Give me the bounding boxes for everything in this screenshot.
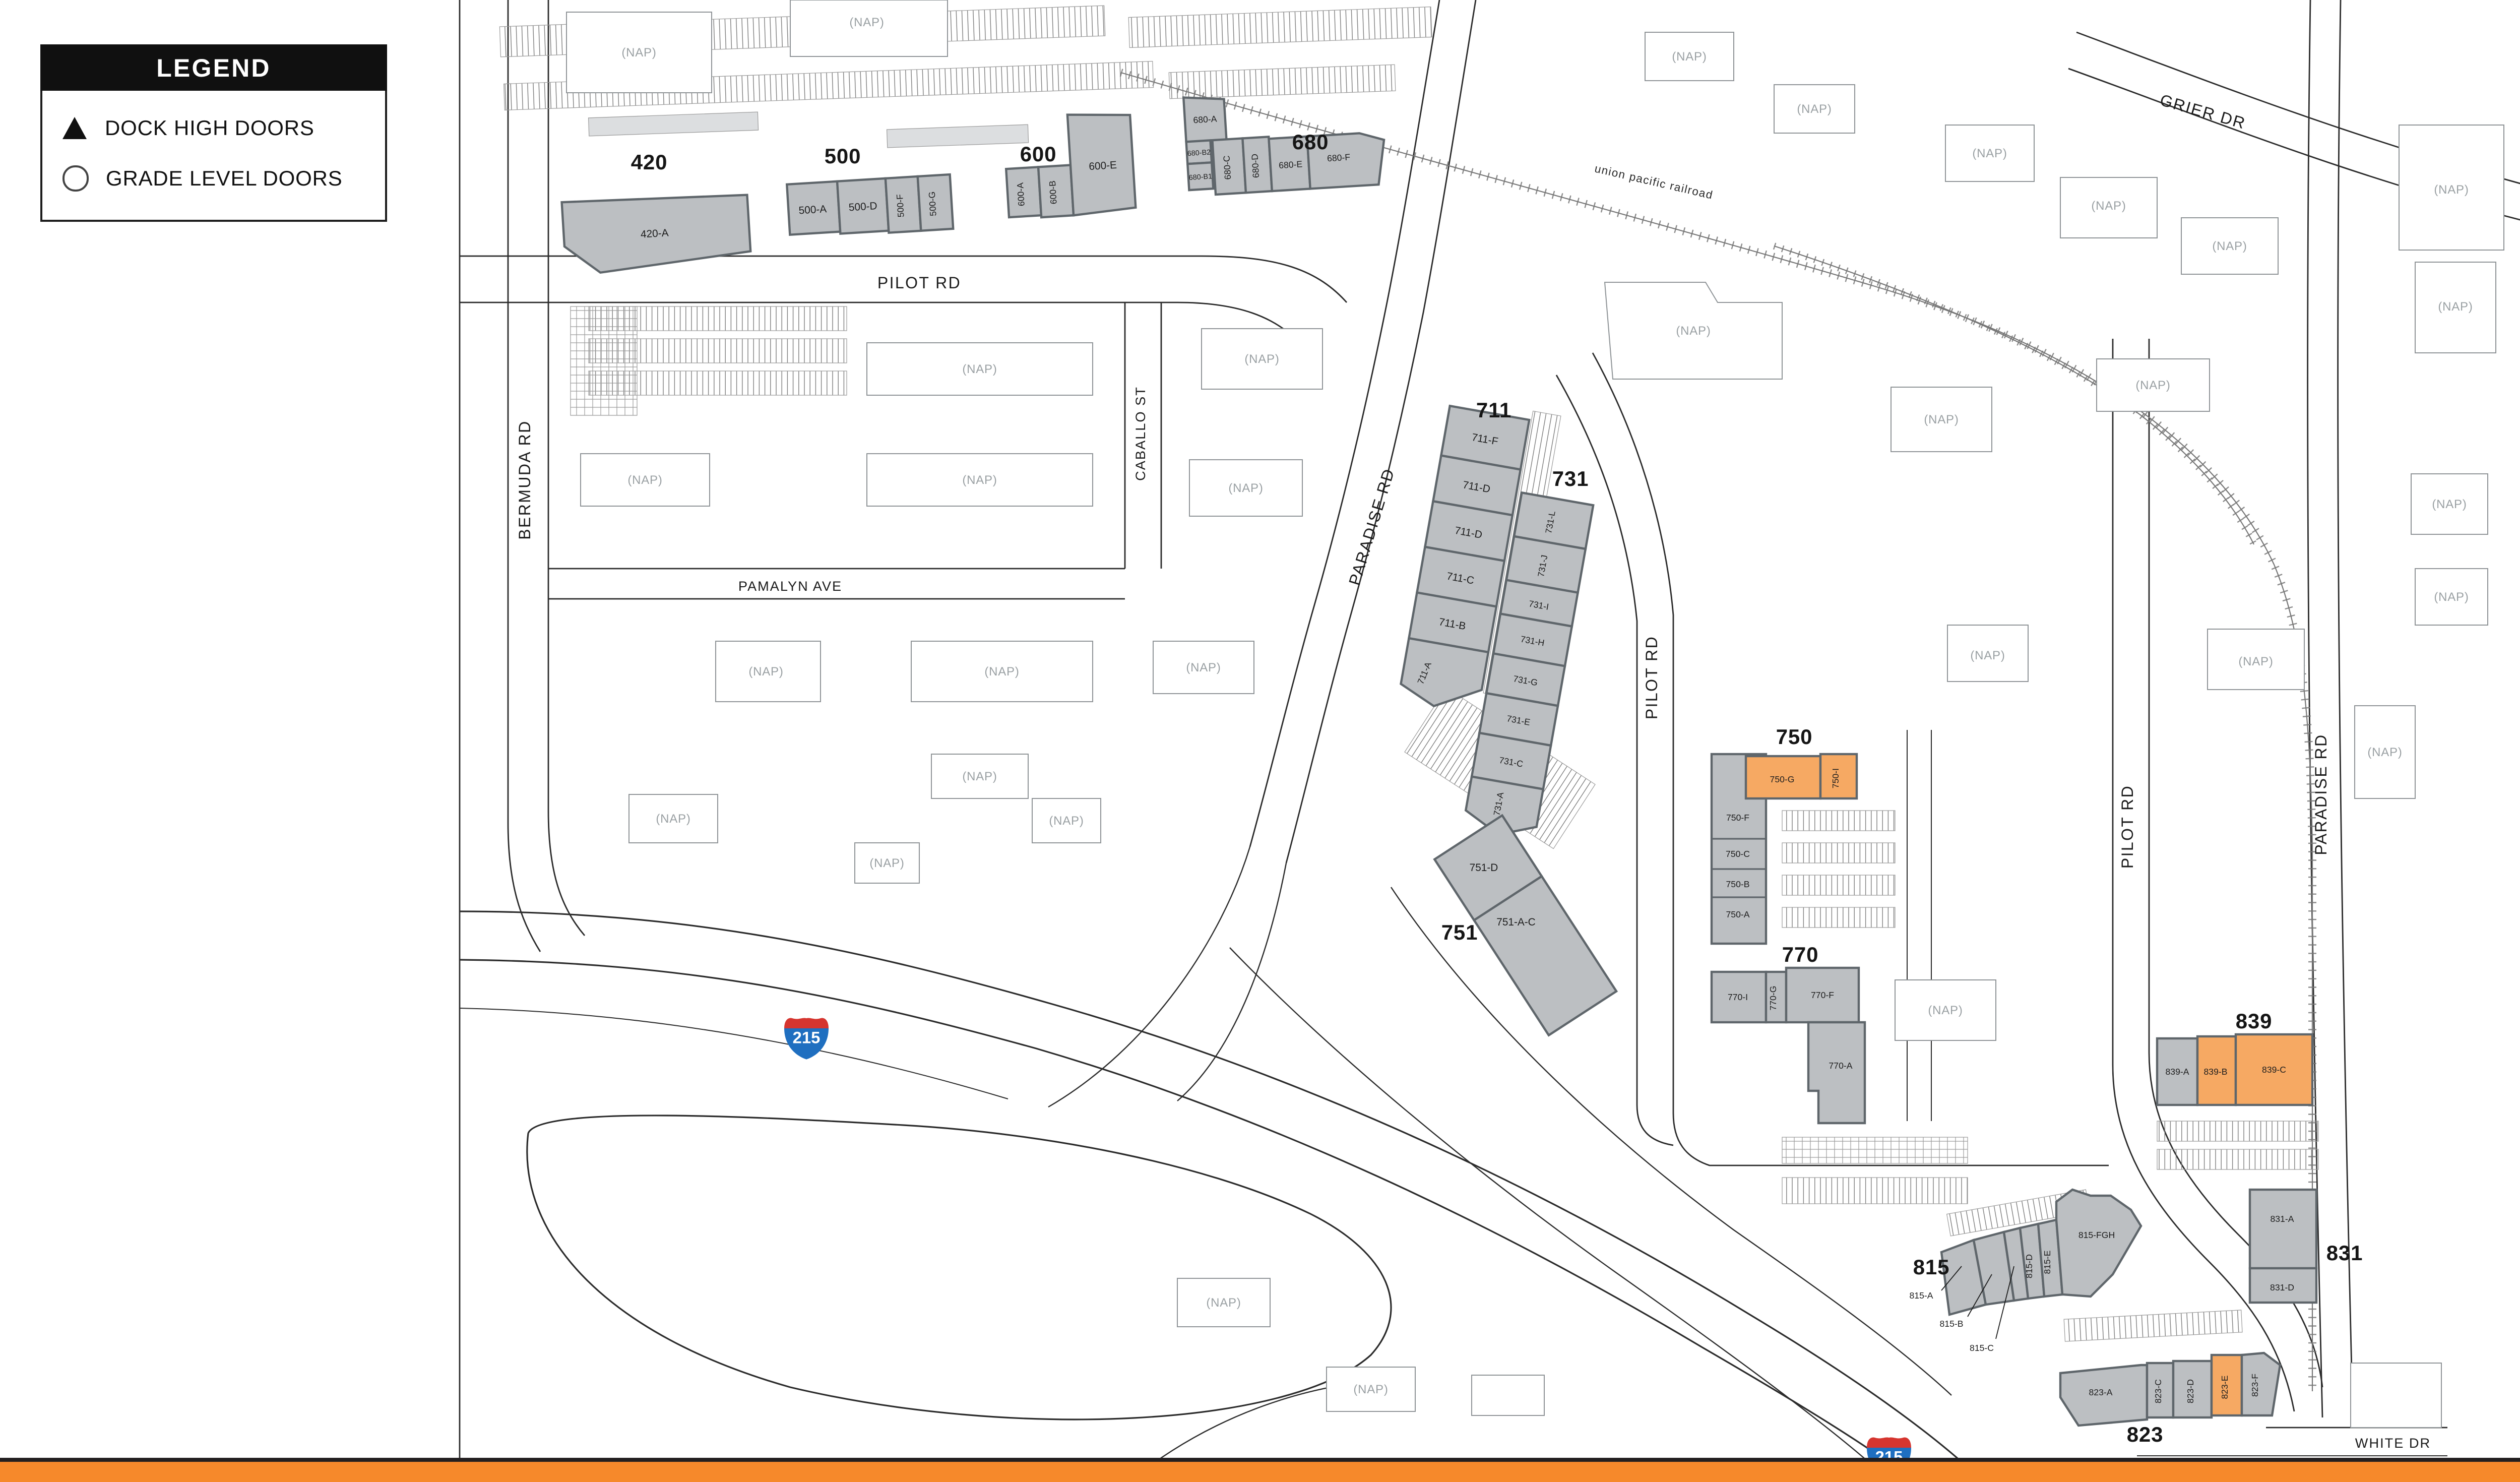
building-815-fgh <box>2056 1190 2141 1296</box>
triangle-icon <box>62 117 87 139</box>
nap-label: (NAP) <box>849 16 884 29</box>
legend-title: LEGEND <box>40 44 387 91</box>
unit-label-500-d: 500-D <box>848 200 877 213</box>
unit-label-500-f: 500-F <box>895 194 906 217</box>
legend-item-label: GRADE LEVEL DOORS <box>106 166 343 191</box>
nap-label: (NAP) <box>1924 413 1959 426</box>
building-823-f <box>2242 1353 2280 1415</box>
unit-label-823-d: 823-D <box>2185 1379 2195 1403</box>
building-number-711: 711 <box>1476 398 1511 422</box>
building-number-750: 750 <box>1776 725 1812 749</box>
unit-label-751-ac: 751-A-C <box>1496 916 1535 928</box>
unit-label-680-f: 680-F <box>1327 152 1351 164</box>
cluster-823: 823-A 823-C 823-D 823-E 823-F <box>2060 1353 2280 1426</box>
interstate-215-shield: 215 <box>784 1018 829 1059</box>
nap-label: (NAP) <box>2238 655 2273 668</box>
unit-label-831-d: 831-D <box>2270 1282 2294 1292</box>
unit-label-680-b2: 680-B2 <box>1187 148 1211 158</box>
nap-label: (NAP) <box>2212 239 2247 253</box>
unit-label-500-a: 500-A <box>798 203 827 216</box>
street-label-paradise-rd-right: PARADISE RD <box>2312 734 2330 855</box>
nap-label: (NAP) <box>2432 498 2467 511</box>
nap-label: (NAP) <box>2367 746 2402 759</box>
unit-label-750-a: 750-A <box>1726 909 1750 919</box>
unit-label-770-i: 770-I <box>1728 992 1748 1002</box>
unit-label-750-i: 750-I <box>1831 768 1841 788</box>
unit-label-815-c: 815-C <box>1970 1343 1994 1353</box>
cluster-770: 770-I 770-G 770-F 770-A <box>1712 968 1865 1123</box>
nap-label: (NAP) <box>1228 481 1263 495</box>
building-number-823: 823 <box>2127 1423 2163 1446</box>
unit-label-815-d: 815-D <box>2024 1254 2034 1278</box>
unit-label-600-e: 600-E <box>1089 159 1117 172</box>
unit-label-600-a: 600-A <box>1015 182 1027 206</box>
street-label-grier-dr: GRIER DR <box>2158 91 2248 133</box>
street-label-union-pacific-railroad: union pacific railroad <box>1594 162 1715 201</box>
nap-label: (NAP) <box>748 665 783 678</box>
street-label-pilot-rd-top: PILOT RD <box>877 274 961 292</box>
street-label-pilot-rd-right: PILOT RD <box>2118 785 2136 869</box>
unit-label-500-g: 500-G <box>927 191 938 216</box>
footer-accent-bar <box>0 1462 2520 1482</box>
nap-label: (NAP) <box>656 812 690 826</box>
street-label-white-dr: WHITE DR <box>2355 1435 2431 1451</box>
unit-label-815-a: 815-A <box>1910 1290 1933 1301</box>
unit-label-750-b: 750-B <box>1726 879 1750 889</box>
nap-label: (NAP) <box>1049 814 1084 828</box>
building-number-770: 770 <box>1782 943 1818 966</box>
nap-label: (NAP) <box>962 770 997 783</box>
nap-label: (NAP) <box>1970 649 2005 662</box>
nap-label: (NAP) <box>2434 590 2469 604</box>
shield-215-label: 215 <box>793 1028 821 1047</box>
unit-label-839-a: 839-A <box>2166 1067 2189 1077</box>
unit-label-831-a: 831-A <box>2271 1214 2294 1224</box>
street-label-caballo-st: CABALLO ST <box>1132 386 1148 481</box>
nap-label: (NAP) <box>2135 379 2170 392</box>
unit-label-823-a: 823-A <box>2089 1387 2113 1397</box>
nap-label: (NAP) <box>869 856 904 870</box>
building-number-839: 839 <box>2236 1009 2272 1033</box>
nap-label: (NAP) <box>627 473 662 487</box>
building-number-731: 731 <box>1552 467 1589 490</box>
building-number-831: 831 <box>2326 1241 2363 1265</box>
street-label-bermuda-rd: BERMUDA RD <box>516 420 534 539</box>
nap-label: (NAP) <box>1797 102 1832 116</box>
nap-label: (NAP) <box>1928 1004 1963 1017</box>
legend-item-dock-high-doors: DOCK HIGH DOORS <box>62 103 369 153</box>
unit-label-750-c: 750-C <box>1726 849 1750 859</box>
site-plan-page: (NAP) (NAP) (NAP) (NAP) (NAP) (NAP) (NAP… <box>0 0 2520 1482</box>
legend-item-label: DOCK HIGH DOORS <box>105 116 314 140</box>
street-label-pilot-rd-center: PILOT RD <box>1643 636 1661 719</box>
unit-label-600-b: 600-B <box>1047 180 1059 205</box>
unit-label-823-e: 823-E <box>2220 1376 2230 1399</box>
street-label-paradise-rd-center: PARADISE RD <box>1345 466 1398 587</box>
nap-label: (NAP) <box>1676 324 1711 338</box>
circle-icon <box>62 166 88 191</box>
unit-label-420-a: 420-A <box>640 227 669 240</box>
nap-label: (NAP) <box>962 473 997 487</box>
unit-label-815-fgh: 815-FGH <box>2078 1230 2115 1240</box>
unit-label-839-b: 839-B <box>2204 1067 2228 1077</box>
unit-label-680-b1: 680-B1 <box>1188 172 1212 182</box>
street-label-pamalyn-ave: PAMALYN AVE <box>738 578 842 594</box>
nap-label: (NAP) <box>2434 183 2469 197</box>
unit-label-680-c: 680-C <box>1221 155 1233 180</box>
building-number-600: 600 <box>1020 142 1056 166</box>
legend: LEGEND DOCK HIGH DOORS GRADE LEVEL DOORS <box>40 44 387 222</box>
nap-label: (NAP) <box>1206 1296 1241 1310</box>
unit-label-839-c: 839-C <box>2262 1065 2286 1075</box>
nap-label: (NAP) <box>1186 661 1221 674</box>
unit-label-751-d: 751-D <box>1470 862 1498 874</box>
nap-label: (NAP) <box>962 362 997 376</box>
site-plan-map: (NAP) (NAP) (NAP) (NAP) (NAP) (NAP) (NAP… <box>0 0 2520 1482</box>
building-number-500: 500 <box>825 144 861 168</box>
unit-label-770-g: 770-G <box>1768 986 1778 1011</box>
footer-divider <box>0 1458 2520 1462</box>
unit-label-770-a: 770-A <box>1829 1061 1853 1071</box>
unit-label-815-b: 815-B <box>1940 1319 1964 1329</box>
building-number-751: 751 <box>1441 920 1478 944</box>
unit-label-680-d: 680-D <box>1249 153 1261 178</box>
legend-item-grade-level-doors: GRADE LEVEL DOORS <box>62 153 369 204</box>
nap-label: (NAP) <box>1972 147 2007 160</box>
unit-label-750-f: 750-F <box>1726 813 1749 823</box>
nap-label: (NAP) <box>1244 352 1279 366</box>
unit-label-680-a: 680-A <box>1193 114 1217 126</box>
unit-label-823-f: 823-F <box>2250 1374 2260 1397</box>
legend-body: DOCK HIGH DOORS GRADE LEVEL DOORS <box>40 91 387 222</box>
nap-label: (NAP) <box>2438 300 2473 314</box>
nap-label: (NAP) <box>1353 1383 1388 1396</box>
road-paradise-rd-center <box>1250 0 1439 847</box>
nap-label: (NAP) <box>984 665 1019 678</box>
unit-label-680-e: 680-E <box>1279 159 1303 170</box>
nap-label: (NAP) <box>621 46 656 59</box>
unit-label-815-e: 815-E <box>2042 1251 2052 1274</box>
unit-label-750-g: 750-G <box>1770 774 1795 784</box>
building-831-a <box>2250 1190 2316 1268</box>
building-770-a <box>1808 1022 1865 1123</box>
nap-label: (NAP) <box>1672 50 1707 64</box>
cluster-831: 831-A 831-D <box>2250 1190 2316 1303</box>
cluster-839: 839-A 839-B 839-C <box>2157 1034 2312 1105</box>
building-number-815: 815 <box>1913 1255 1949 1279</box>
unit-label-823-c: 823-C <box>2153 1379 2163 1403</box>
unit-label-770-f: 770-F <box>1811 990 1834 1000</box>
building-number-680: 680 <box>1292 130 1329 154</box>
nap-label: (NAP) <box>2091 199 2126 213</box>
building-number-420: 420 <box>631 150 667 174</box>
